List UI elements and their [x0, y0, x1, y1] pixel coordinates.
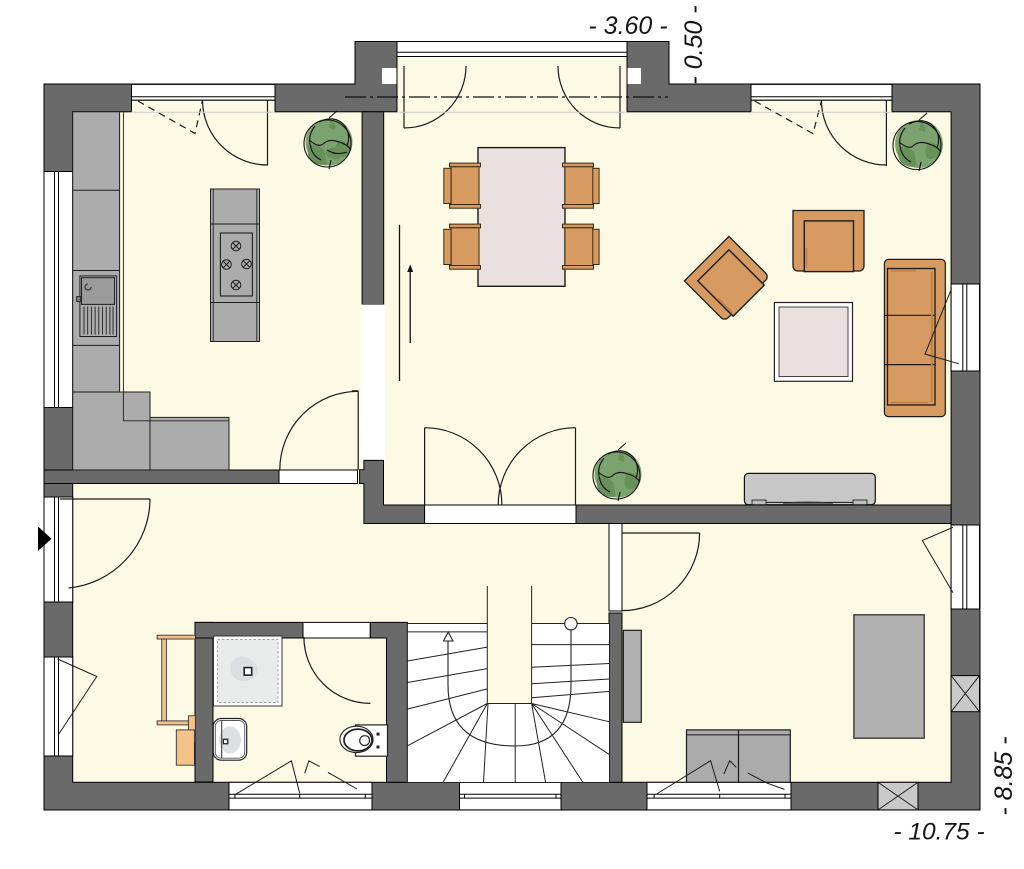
- svg-text:- 3.60 -: - 3.60 -: [588, 12, 667, 40]
- svg-text:- 10.75 -: - 10.75 -: [893, 819, 984, 846]
- svg-text:- 8.85 -: - 8.85 -: [990, 736, 1018, 815]
- svg-text:- 0.50 -: - 0.50 -: [680, 5, 708, 84]
